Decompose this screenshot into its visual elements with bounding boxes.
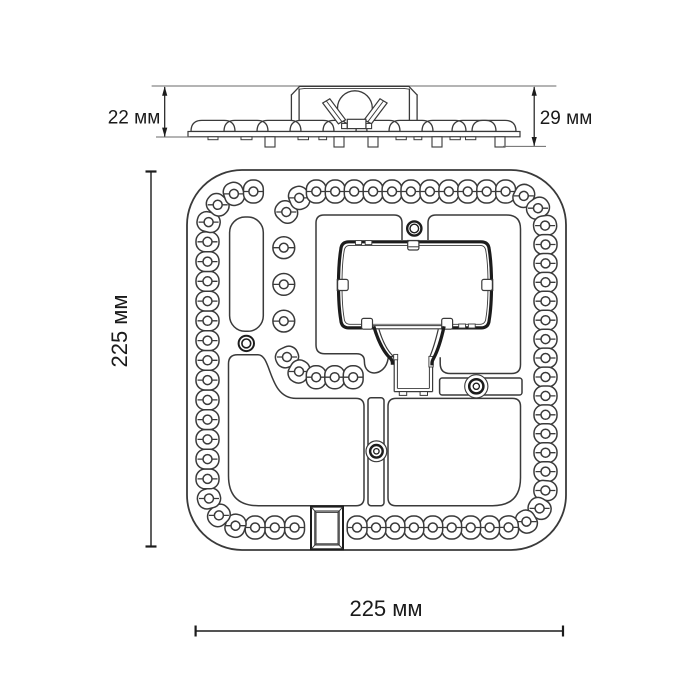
- svg-text:225 мм: 225 мм: [107, 294, 132, 367]
- svg-text:22 мм: 22 мм: [108, 108, 161, 129]
- svg-text:29 мм: 29 мм: [540, 108, 593, 129]
- svg-text:225 мм: 225 мм: [349, 596, 422, 621]
